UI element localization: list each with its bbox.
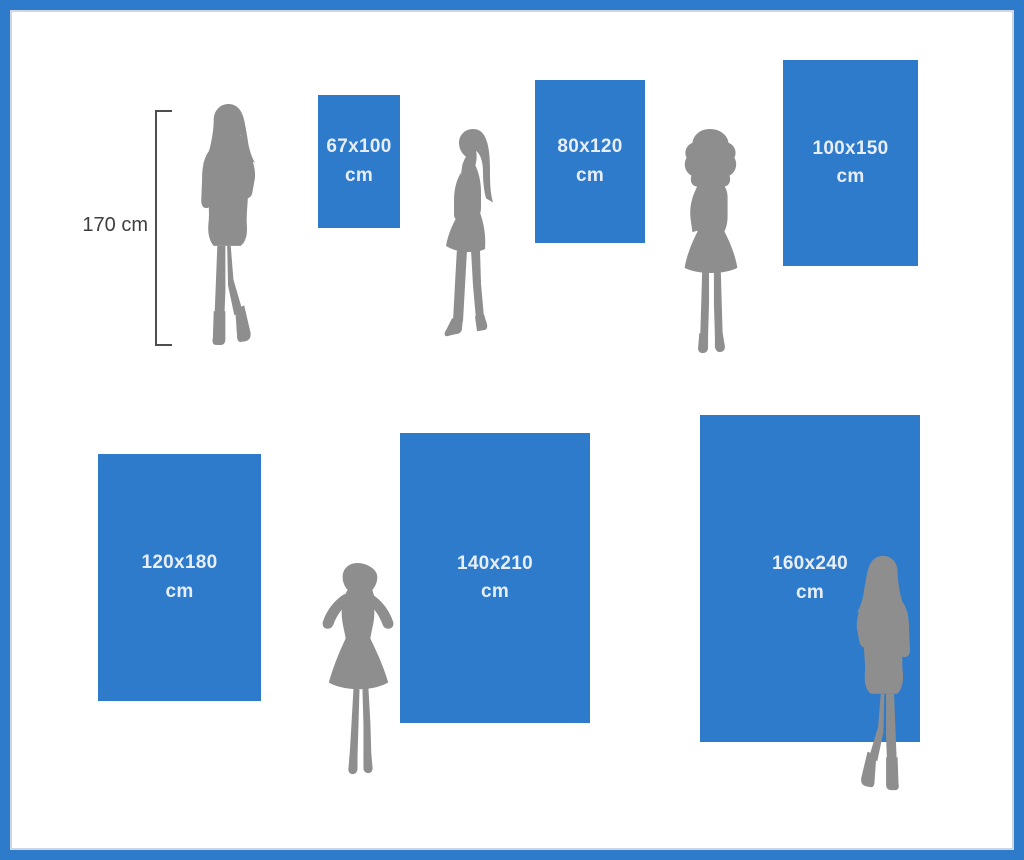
woman-silhouette-icon: [841, 553, 925, 794]
woman-silhouette-front: [186, 101, 271, 349]
size-unit: cm: [457, 578, 533, 607]
height-measure-bracket: [155, 110, 172, 346]
size-rect-120x180: 120x180 cm: [98, 454, 261, 701]
woman-silhouette-icon: [186, 101, 271, 349]
size-value: 100x150: [812, 135, 888, 164]
size-rect-67x100: 67x100 cm: [318, 95, 400, 228]
size-value: 140x210: [457, 550, 533, 579]
woman-silhouette-curly-hair: [669, 127, 752, 362]
size-unit: cm: [812, 163, 888, 192]
size-rect-label: 80x120 cm: [557, 133, 622, 190]
size-rect-label: 140x210 cm: [457, 550, 533, 607]
person-height-label: 170 cm: [56, 214, 148, 237]
size-value: 120x180: [141, 549, 217, 578]
size-rect-140x210: 140x210 cm: [400, 433, 590, 723]
size-rect-label: 100x150 cm: [812, 135, 888, 192]
woman-silhouette-front-mirrored: [841, 553, 925, 794]
size-rect-100x150: 100x150 cm: [783, 60, 918, 266]
size-rect-80x120: 80x120 cm: [535, 80, 645, 243]
poster-size-comparison-diagram: 170 cm 67x100 cm 80x120 cm 100x150 cm 12…: [0, 0, 1024, 860]
size-value: 160x240: [772, 550, 848, 579]
size-unit: cm: [326, 162, 391, 191]
woman-silhouette-icon: [437, 127, 507, 360]
size-unit: cm: [772, 579, 848, 608]
size-rect-label: 160x240 cm: [772, 550, 848, 607]
size-value: 80x120: [557, 133, 622, 162]
size-unit: cm: [141, 578, 217, 607]
woman-silhouette-profile: [437, 127, 507, 360]
woman-silhouette-icon: [308, 561, 407, 798]
size-value: 67x100: [326, 133, 391, 162]
size-unit: cm: [557, 162, 622, 191]
size-rect-label: 67x100 cm: [326, 133, 391, 190]
size-rect-label: 120x180 cm: [141, 549, 217, 606]
woman-silhouette-hands-on-hips: [308, 561, 407, 798]
woman-silhouette-icon: [669, 127, 752, 362]
